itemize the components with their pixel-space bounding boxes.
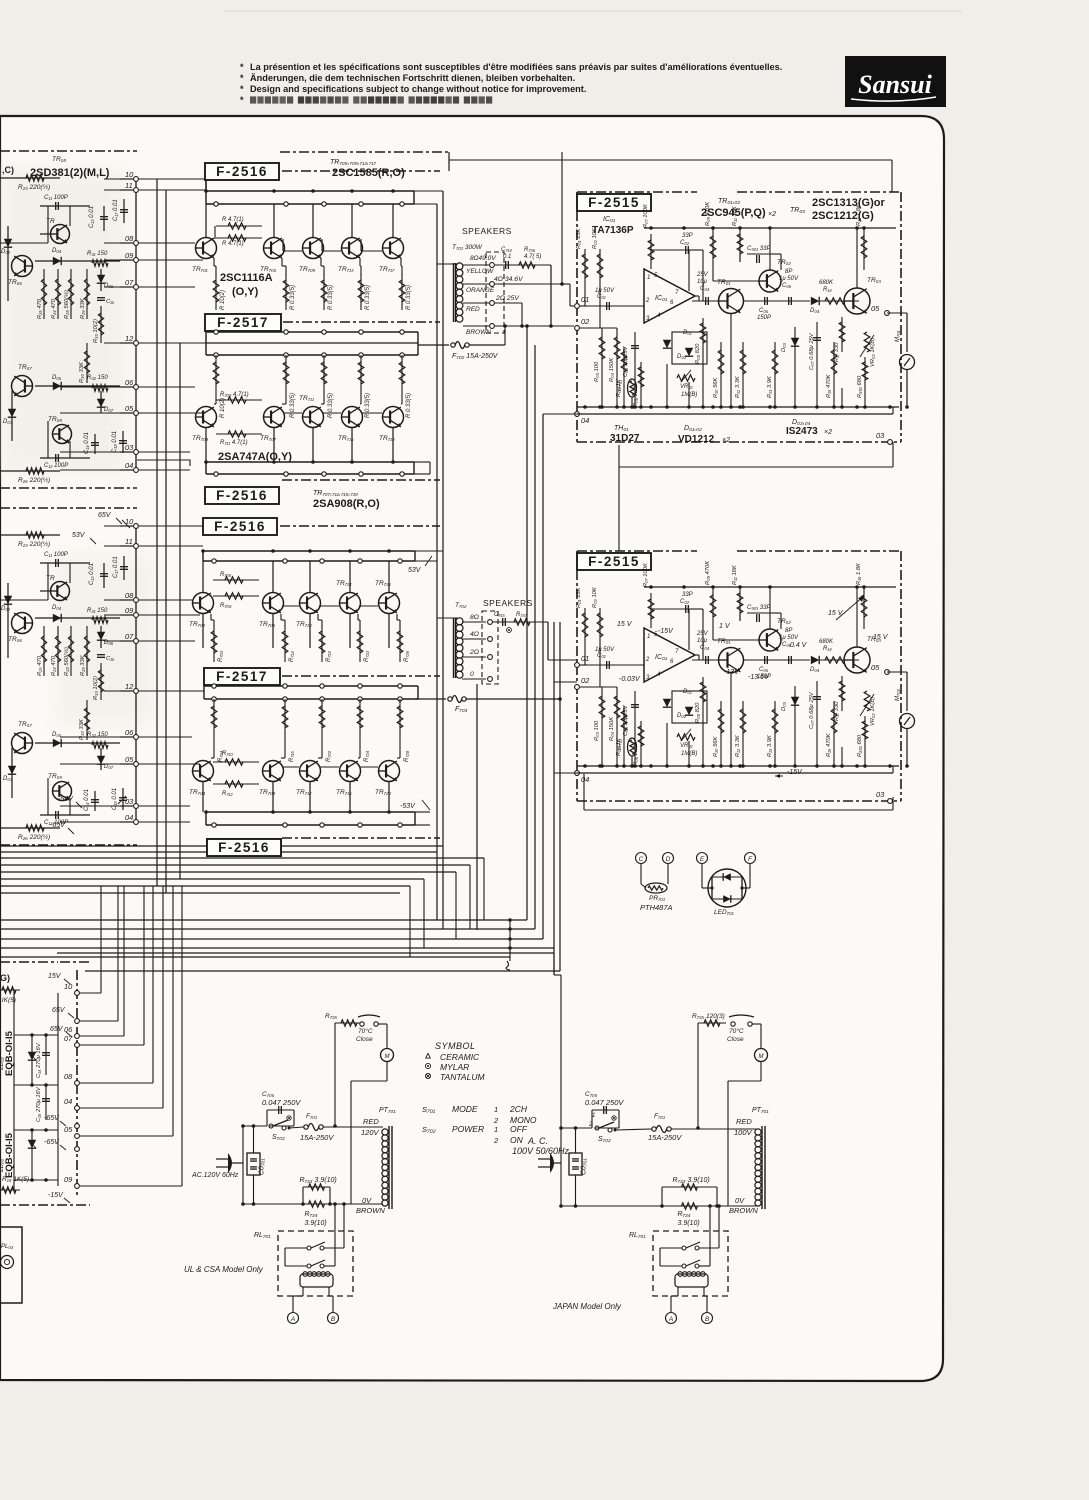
svg-text:R₂₉ 33K: R₂₉ 33K <box>80 654 86 676</box>
svg-text:TR₀₇: TR₀₇ <box>18 364 32 371</box>
svg-text:ZD₀₂: ZD₀₂ <box>0 1056 5 1071</box>
svg-text:R 0.33(5): R 0.33(5) <box>365 285 371 310</box>
svg-text:-13.6V: -13.6V <box>748 674 770 681</box>
svg-text:R 4.7(1): R 4.7(1) <box>222 217 244 223</box>
svg-text:31D27: 31D27 <box>610 433 640 444</box>
svg-text:VR₀₁: VR₀₁ <box>680 384 693 390</box>
svg-text:04: 04 <box>125 461 133 470</box>
svg-text:1 V: 1 V <box>719 623 731 630</box>
svg-text:R₇₂₄: R₇₂₄ <box>364 750 370 762</box>
svg-text:ORANGE: ORANGE <box>466 287 495 294</box>
svg-text:2: 2 <box>588 1122 593 1128</box>
svg-text:08: 08 <box>64 1072 73 1081</box>
svg-text:R₇₃₄: R₇₃₄ <box>678 1211 691 1218</box>
svg-text:C₁₇ 0.01: C₁₇ 0.01 <box>113 199 119 221</box>
svg-text:15V: 15V <box>48 973 62 980</box>
svg-text:15A-250V: 15A-250V <box>648 1133 682 1142</box>
svg-text:EQB-OI-I5: EQB-OI-I5 <box>4 1030 15 1076</box>
svg-text:09: 09 <box>125 606 134 615</box>
svg-text:D₀₄: D₀₄ <box>810 308 820 314</box>
svg-text:SYMBOL: SYMBOL <box>435 1041 476 1051</box>
svg-text:11: 11 <box>125 537 133 546</box>
svg-text:VR₀₁: VR₀₁ <box>680 743 693 749</box>
svg-text:R₀₈ 820: R₀₈ 820 <box>695 343 701 364</box>
svg-text:33P: 33P <box>682 592 693 598</box>
svg-text:S₇₀₂: S₇₀₂ <box>272 1134 285 1141</box>
svg-text:R₂₈ 560(½): R₂₈ 560(½) <box>63 647 70 676</box>
svg-text:R₇₁₂: R₇₁₂ <box>222 791 233 797</box>
svg-text:R₇₀₂: R₇₀₂ <box>218 650 224 662</box>
svg-text:0.4 V: 0.4 V <box>790 642 808 649</box>
svg-text:05: 05 <box>871 304 880 313</box>
svg-text:05: 05 <box>64 1125 73 1134</box>
svg-text:D₀₃,₀₄: D₀₃,₀₄ <box>792 419 811 426</box>
svg-text:R₃₀ 33K: R₃₀ 33K <box>79 361 85 383</box>
svg-text:D₀₆: D₀₆ <box>104 283 114 289</box>
svg-text:(O,Y): (O,Y) <box>232 286 259 298</box>
svg-text:*: * <box>240 84 244 94</box>
svg-text:R₇₃₅ 120(3): R₇₃₅ 120(3) <box>692 1013 725 1020</box>
svg-text:R₃₂ 150: R₃₂ 150 <box>87 375 108 381</box>
svg-text:TA7136P: TA7136P <box>592 225 634 236</box>
svg-text:M₇₀₁: M₇₀₁ <box>895 330 901 342</box>
svg-text:R₈₀₁ 680: R₈₀₁ 680 <box>857 734 863 757</box>
svg-text:POWER: POWER <box>452 1124 484 1134</box>
svg-text:T₇₀₁ 300W: T₇₀₁ 300W <box>452 244 483 251</box>
svg-text:2SA747A(O,Y): 2SA747A(O,Y) <box>218 451 292 463</box>
svg-text:Sansui: Sansui <box>858 70 932 99</box>
svg-text:M: M <box>385 1054 390 1060</box>
svg-text:C0₇₀₁: C0₇₀₁ <box>259 1158 266 1175</box>
svg-text:TR₀₇: TR₀₇ <box>18 721 32 728</box>
svg-text:07: 07 <box>64 1034 73 1043</box>
svg-text:VD1212: VD1212 <box>678 434 715 445</box>
svg-text:SPEAKERS: SPEAKERS <box>483 598 533 608</box>
svg-text:0V: 0V <box>735 1196 745 1205</box>
svg-text:70°C: 70°C <box>358 1027 373 1035</box>
svg-text:D₀₂: D₀₂ <box>677 713 687 719</box>
svg-text:C₁₄ 0.01: C₁₄ 0.01 <box>84 432 90 454</box>
svg-text:Close: Close <box>356 1036 373 1043</box>
svg-text:TR: TR <box>46 575 55 582</box>
svg-text:CERAMIC: CERAMIC <box>440 1052 480 1062</box>
svg-text:S₇₀₁: S₇₀₁ <box>422 1105 436 1114</box>
svg-text:04: 04 <box>64 1097 72 1106</box>
svg-text:TR₇₀₅,₇₀₉,₇₁₃,₇₁₇: TR₇₀₅,₇₀₉,₇₁₃,₇₁₇ <box>330 159 377 166</box>
svg-text:G): G) <box>0 973 10 983</box>
svg-text:C₁₈ 0.01: C₁₈ 0.01 <box>112 431 118 453</box>
svg-text:TH₀₁: TH₀₁ <box>617 380 623 392</box>
svg-text:C₀₇ 0.68μ 25V: C₀₇ 0.68μ 25V <box>809 332 815 370</box>
svg-text:D₀₄: D₀₄ <box>810 667 820 673</box>
svg-text:C₀₁: C₀₁ <box>597 653 606 659</box>
svg-text:1μ 50V: 1μ 50V <box>779 276 799 282</box>
svg-text:R₁₂ 3.3K: R₁₂ 3.3K <box>735 375 741 398</box>
svg-text:06: 06 <box>64 1025 73 1034</box>
svg-text:R₁₄: R₁₄ <box>823 287 832 293</box>
svg-text:R₇₀₈: R₇₀₈ <box>220 603 232 609</box>
svg-text:R₀₂ 10K: R₀₂ 10K <box>592 586 598 608</box>
svg-text:TR₇₀₉: TR₇₀₉ <box>299 266 316 273</box>
svg-text:R₁₃ 3.9K: R₁₃ 3.9K <box>767 734 773 757</box>
svg-text:R 0.33(5): R 0.33(5) <box>406 393 412 418</box>
svg-text:2CH: 2CH <box>509 1104 528 1114</box>
svg-text:2SC1212(G): 2SC1212(G) <box>812 210 874 222</box>
svg-text:TR₀₃: TR₀₃ <box>867 277 881 284</box>
svg-text:C0₇₀₁: C0₇₀₁ <box>581 1158 588 1175</box>
svg-text:R₂₃ 220(½): R₂₃ 220(½) <box>18 540 50 548</box>
svg-text:*: * <box>240 73 244 83</box>
svg-text:1: 1 <box>494 1105 498 1114</box>
svg-text:10μ: 10μ <box>697 279 708 285</box>
svg-text:-65V: -65V <box>50 822 66 829</box>
svg-text:150P: 150P <box>757 315 771 321</box>
svg-text:C₇₁₅: C₇₁₅ <box>494 612 505 618</box>
svg-text:C₁₅ 270μ 16V: C₁₅ 270μ 16V <box>36 1086 42 1122</box>
svg-text:R₀₄ 150K: R₀₄ 150K <box>609 357 615 382</box>
svg-text:C₀₄: C₀₄ <box>700 286 710 292</box>
svg-text:R 0.33(5): R 0.33(5) <box>328 285 334 310</box>
svg-text:F₇₀₂ 15A-250V: F₇₀₂ 15A-250V <box>452 353 499 360</box>
svg-text:R₇₃₄: R₇₃₄ <box>305 1211 318 1218</box>
svg-text:F-2517: F-2517 <box>216 669 268 684</box>
svg-text:11: 11 <box>125 181 133 190</box>
svg-text:R₁₅ 470K: R₁₅ 470K <box>826 373 832 398</box>
svg-text:15A-250V: 15A-250V <box>300 1133 334 1142</box>
svg-text:120V: 120V <box>361 1128 380 1137</box>
svg-text:3.9(10): 3.9(10) <box>678 1220 700 1227</box>
svg-text:C₇₁₄: C₇₁₄ <box>501 247 512 253</box>
svg-text:R₁₇ 330: R₁₇ 330 <box>834 701 840 721</box>
svg-text:,C): ,C) <box>2 165 14 175</box>
svg-text:1μ 50V: 1μ 50V <box>595 647 615 653</box>
svg-text:C₁₅: C₁₅ <box>106 656 115 662</box>
svg-text:R₂₄ 470: R₂₄ 470 <box>51 298 57 319</box>
svg-text:F₇₀₁: F₇₀₁ <box>654 1113 665 1120</box>
svg-text:D₀₃: D₀₃ <box>781 701 787 711</box>
svg-text:F₇₀₃: F₇₀₃ <box>455 706 468 713</box>
svg-text:C₉₀₁ 33P: C₉₀₁ 33P <box>747 605 770 611</box>
svg-text:BROWN: BROWN <box>729 1206 758 1215</box>
svg-text:R₃₁ 150: R₃₁ 150 <box>87 608 108 614</box>
svg-text:D₀₁: D₀₁ <box>683 689 692 695</box>
svg-text:MODE: MODE <box>452 1104 478 1114</box>
svg-text:02: 02 <box>581 676 590 685</box>
svg-text:Design and specifications subj: Design and specifications subject to cha… <box>250 84 586 94</box>
svg-text:C₁₃ 0.01: C₁₃ 0.01 <box>89 563 95 585</box>
svg-text:R₇₂₂: R₇₂₂ <box>364 650 370 662</box>
svg-text:R₁₇ 330: R₁₇ 330 <box>834 342 840 362</box>
svg-text:03: 03 <box>876 790 885 799</box>
svg-text:1μ 50V: 1μ 50V <box>779 635 799 641</box>
svg-text:12: 12 <box>125 334 134 343</box>
svg-text:F-2516: F-2516 <box>216 488 268 503</box>
svg-text:R 10(2): R 10(2) <box>220 290 226 310</box>
svg-text:53V: 53V <box>72 532 86 539</box>
svg-text:R₁₄: R₁₄ <box>823 646 832 652</box>
svg-text:2SA908(R,O): 2SA908(R,O) <box>313 498 380 510</box>
svg-text:TH₀₁: TH₀₁ <box>614 425 629 432</box>
svg-text:R₇₂₀: R₇₂₀ <box>326 750 332 762</box>
svg-text:R₂₆ 220(½): R₂₆ 220(½) <box>18 476 50 484</box>
svg-text:PL₀₃: PL₀₃ <box>1 1244 14 1250</box>
svg-text:S₇₀₂: S₇₀₂ <box>422 1125 436 1134</box>
svg-text:2Ω: 2Ω <box>469 649 479 656</box>
svg-text:MYLAR: MYLAR <box>440 1062 469 1072</box>
svg-text:10: 10 <box>125 170 134 179</box>
svg-text:05: 05 <box>871 663 880 672</box>
svg-text:100V: 100V <box>734 1128 753 1137</box>
svg-text:R₃₃ 10(2): R₃₃ 10(2) <box>93 676 99 700</box>
svg-text:TR₀₆: TR₀₆ <box>8 636 22 643</box>
svg-text:R₂₅ 470: R₂₅ 470 <box>37 298 43 319</box>
svg-text:TANTALUM: TANTALUM <box>440 1072 485 1082</box>
svg-text:15 V: 15 V <box>617 621 633 628</box>
svg-text:D₀₃: D₀₃ <box>3 776 13 782</box>
svg-text:R₇₃₃ 3.9(10): R₇₃₃ 3.9(10) <box>300 1177 337 1184</box>
svg-text:D₀₅: D₀₅ <box>52 375 62 381</box>
svg-text:07: 07 <box>125 632 134 641</box>
svg-text:D: D <box>666 856 671 863</box>
svg-text:R 4.7(1): R 4.7(1) <box>222 241 244 247</box>
svg-text:D₀₂: D₀₂ <box>677 354 687 360</box>
svg-text:IC₀₁: IC₀₁ <box>655 654 668 661</box>
svg-text:R₇₀₉ 4.7(1): R₇₀₉ 4.7(1) <box>220 392 249 398</box>
svg-text:RED: RED <box>466 306 480 313</box>
svg-text:SPEAKERS: SPEAKERS <box>462 226 512 236</box>
svg-text:08: 08 <box>125 234 134 243</box>
svg-text:R 10(2): R 10(2) <box>220 398 226 418</box>
svg-text:F-2516: F-2516 <box>214 519 266 534</box>
svg-text:TR₇₁₇: TR₇₁₇ <box>379 266 395 273</box>
svg-text:RED: RED <box>736 1117 752 1126</box>
svg-text:1: 1 <box>592 1113 595 1119</box>
svg-text:70°C: 70°C <box>729 1027 744 1035</box>
svg-text:R₀₃ 100: R₀₃ 100 <box>594 720 600 741</box>
svg-text:0.047 250V: 0.047 250V <box>262 1098 301 1107</box>
svg-text:R₇₂₈: R₇₂₈ <box>404 750 410 762</box>
svg-text:R₇₁₆: R₇₁₆ <box>289 751 295 762</box>
svg-text:TR: TR <box>46 218 55 225</box>
svg-text:M: M <box>759 1054 764 1060</box>
svg-text:04: 04 <box>581 416 589 425</box>
svg-text:BROWN: BROWN <box>356 1206 385 1215</box>
svg-text:R 0.33(5): R 0.33(5) <box>328 393 334 418</box>
svg-text:8P: 8P <box>785 628 792 634</box>
svg-text:LED₇₀₁: LED₇₀₁ <box>714 909 734 916</box>
svg-text:2SC1585(R,O): 2SC1585(R,O) <box>332 167 405 179</box>
svg-text:06: 06 <box>125 728 134 737</box>
svg-text:C₁₁ 100P: C₁₁ 100P <box>44 552 68 558</box>
svg-text:C₀₁: C₀₁ <box>597 294 606 300</box>
svg-text:1: 1 <box>647 634 650 640</box>
svg-text:C₁₄ 0.01: C₁₄ 0.01 <box>84 789 90 811</box>
svg-text:1: 1 <box>494 1125 498 1134</box>
svg-text:8P: 8P <box>785 269 792 275</box>
svg-text:RL₇₀₁: RL₇₀₁ <box>629 1232 646 1239</box>
svg-text:53V: 53V <box>408 567 422 574</box>
svg-text:UL & CSA Model Only: UL & CSA Model Only <box>184 1265 264 1274</box>
svg-text:TR₀₉: TR₀₉ <box>48 773 62 780</box>
svg-text:PT₇₀₁: PT₇₀₁ <box>752 1107 769 1114</box>
svg-text:C₇₀₅: C₇₀₅ <box>585 1091 598 1098</box>
svg-text:TR₇₀₇,₇₁₁,₇₁₅,₇₁₉: TR₇₀₇,₇₁₁,₇₁₅,₇₁₉ <box>313 490 358 497</box>
svg-text:C₀₇ 0.68μ 25V: C₀₇ 0.68μ 25V <box>809 691 815 729</box>
svg-text:VR₀₂ 1K(B): VR₀₂ 1K(B) <box>870 338 876 367</box>
svg-text:D₀₇: D₀₇ <box>104 764 114 770</box>
svg-text:PT₇₀₁: PT₇₀₁ <box>379 1107 396 1114</box>
svg-text:0V: 0V <box>362 1196 372 1205</box>
svg-text:R₁₃ 3.9K: R₁₃ 3.9K <box>767 375 773 398</box>
svg-text:R₀₃ 100: R₀₃ 100 <box>594 361 600 382</box>
svg-text:R₇₁₁ 4.7(1): R₇₁₁ 4.7(1) <box>220 440 248 446</box>
svg-text:R₇₃₅: R₇₃₅ <box>325 1013 338 1020</box>
svg-text:TR₀₉: TR₀₉ <box>48 416 62 423</box>
svg-text:TR₀₃: TR₀₃ <box>790 207 805 214</box>
svg-text:R₈₀₁ 680: R₈₀₁ 680 <box>857 375 863 398</box>
svg-text:4Ω: 4Ω <box>470 631 479 638</box>
svg-text:A: A <box>668 1316 673 1323</box>
svg-text:R₂₉ 33K: R₂₉ 33K <box>80 297 86 319</box>
svg-text:07: 07 <box>125 278 134 287</box>
svg-text:15 V: 15 V <box>873 634 889 641</box>
svg-text:ON: ON <box>510 1135 524 1145</box>
svg-text:R₃₃ 10(2): R₃₃ 10(2) <box>93 319 99 343</box>
svg-text:IC₀₁: IC₀₁ <box>655 295 668 302</box>
svg-text:680K: 680K <box>819 280 834 286</box>
svg-text:×2: ×2 <box>722 437 730 444</box>
svg-text:C₁₂ 100P: C₁₂ 100P <box>44 463 68 469</box>
svg-text:R₇₁₀: R₇₁₀ <box>222 751 233 757</box>
svg-text:R 0.33(5): R 0.33(5) <box>406 285 412 310</box>
svg-text:-53V: -53V <box>58 796 74 803</box>
svg-text:TR₇₁₁: TR₇₁₁ <box>299 395 314 402</box>
svg-text:*: * <box>240 62 244 72</box>
svg-text:C₁₄ 270μ 16V: C₁₄ 270μ 16V <box>36 1042 42 1078</box>
svg-text:2SC1313(G)or: 2SC1313(G)or <box>812 197 885 209</box>
svg-text:IS2473: IS2473 <box>786 426 818 437</box>
svg-text:TH₀₁: TH₀₁ <box>617 739 623 751</box>
svg-text:TR₀₂: TR₀₂ <box>777 618 791 625</box>
svg-text:M₇₀₂: M₇₀₂ <box>895 688 901 701</box>
svg-text:R₇₃₆: R₇₃₆ <box>524 247 536 253</box>
svg-text:8Ω: 8Ω <box>470 614 479 621</box>
svg-text:TR₀₆: TR₀₆ <box>8 279 22 286</box>
svg-text:R₂₃ 220(½): R₂₃ 220(½) <box>18 183 50 191</box>
svg-text:06: 06 <box>125 378 134 387</box>
svg-text:R₇₃₃ 3.9(10): R₇₃₃ 3.9(10) <box>673 1177 710 1184</box>
svg-text:TR₀₁: TR₀₁ <box>717 638 730 645</box>
svg-text:IC₀₁: IC₀₁ <box>603 216 616 223</box>
svg-text:D₀₄: D₀₄ <box>52 605 62 611</box>
svg-text:AC.120V 60Hz: AC.120V 60Hz <box>191 1172 239 1179</box>
svg-text:A. C.: A. C. <box>527 1136 548 1146</box>
svg-text:F-2515: F-2515 <box>588 195 640 210</box>
svg-text:R₇₂₆: R₇₂₆ <box>404 650 410 662</box>
svg-text:1μ 50V: 1μ 50V <box>595 288 615 294</box>
svg-text:4Ω 34.6V: 4Ω 34.6V <box>494 276 524 283</box>
svg-text:PTH487A: PTH487A <box>640 903 673 912</box>
svg-text:3.9(10): 3.9(10) <box>305 1220 327 1227</box>
svg-text:PR₇₀₁: PR₇₀₁ <box>649 895 665 902</box>
svg-text:F-2517: F-2517 <box>217 315 269 330</box>
svg-text:04: 04 <box>581 775 589 784</box>
svg-text:B: B <box>705 1316 710 1323</box>
svg-text:EQB-OI-I5: EQB-OI-I5 <box>4 1132 15 1178</box>
svg-text:C₁₃ 0.01: C₁₃ 0.01 <box>89 206 95 228</box>
svg-text:TR₀₈: TR₀₈ <box>52 156 66 163</box>
svg-text:-53V: -53V <box>400 803 416 810</box>
svg-text:C₀₄: C₀₄ <box>700 645 710 651</box>
svg-text:F-2515: F-2515 <box>588 554 640 569</box>
svg-text:C₀₂: C₀₂ <box>680 240 690 246</box>
svg-text:TR₀₁,₀₂: TR₀₁,₀₂ <box>718 198 740 205</box>
svg-text:R₂₈ 560(½): R₂₈ 560(½) <box>63 290 70 319</box>
svg-text:25V: 25V <box>696 631 709 637</box>
svg-text:C₉₀₁ 33P: C₉₀₁ 33P <box>747 246 770 252</box>
svg-text:R 0.33(5): R 0.33(5) <box>290 285 296 310</box>
svg-text:R₁₀ 56K: R₁₀ 56K <box>713 376 719 398</box>
svg-text:-15V: -15V <box>48 1192 64 1199</box>
svg-text:C₀₂: C₀₂ <box>680 599 690 605</box>
svg-text:OFF: OFF <box>510 1124 528 1134</box>
svg-text:R₇₃₇: R₇₃₇ <box>516 612 528 618</box>
svg-text:RL₇₀₁: RL₇₀₁ <box>254 1232 271 1239</box>
svg-text:R₂₅ 470: R₂₅ 470 <box>37 655 43 676</box>
svg-text:-15V: -15V <box>658 628 674 635</box>
svg-text:S₇₀₂: S₇₀₂ <box>598 1136 611 1143</box>
svg-text:R₀₁ 15K: R₀₁ 15K <box>576 586 582 608</box>
svg-text:TR₀₁: TR₀₁ <box>717 279 730 286</box>
svg-text:YELLOW: YELLOW <box>466 268 494 275</box>
svg-text:ZD₀₃: ZD₀₃ <box>0 1158 5 1173</box>
svg-text:TR₀₂: TR₀₂ <box>777 259 791 266</box>
svg-text:25V: 25V <box>696 272 709 278</box>
svg-text:T₇₀₂: T₇₀₂ <box>455 602 467 609</box>
svg-text:R₁₂ 3.3K: R₁₂ 3.3K <box>735 734 741 757</box>
svg-text:09: 09 <box>64 1175 73 1184</box>
svg-text:D₀₇: D₀₇ <box>104 407 114 413</box>
svg-text:F-2516: F-2516 <box>218 840 270 855</box>
svg-text:D₀₁,₀₂: D₀₁,₀₂ <box>684 425 702 432</box>
svg-text:C₀₆: C₀₆ <box>782 283 792 289</box>
svg-text:12: 12 <box>125 682 134 691</box>
svg-text:02: 02 <box>581 317 590 326</box>
svg-text:VR₀₂ 1K(B): VR₀₂ 1K(B) <box>870 697 876 726</box>
svg-text:RED: RED <box>363 1117 379 1126</box>
svg-text:D₀₁: D₀₁ <box>683 330 692 336</box>
svg-text:8Ω49.0V: 8Ω49.0V <box>470 255 496 262</box>
svg-text:C: C <box>639 856 644 863</box>
svg-text:Close: Close <box>727 1036 744 1043</box>
svg-text:33P: 33P <box>682 233 693 239</box>
svg-text:-15V: -15V <box>787 769 803 776</box>
svg-text:C₁₅: C₁₅ <box>106 299 115 305</box>
svg-text:04: 04 <box>125 813 133 822</box>
svg-text:2: 2 <box>645 298 650 304</box>
svg-text:C₁₈ 0.01: C₁₈ 0.01 <box>112 788 118 810</box>
svg-text:E: E <box>700 856 705 863</box>
svg-text:65V: 65V <box>50 1026 64 1033</box>
svg-text:D₀₄: D₀₄ <box>52 248 62 254</box>
svg-text:2Ω 25V: 2Ω 25V <box>495 295 520 302</box>
svg-text:×2: ×2 <box>824 429 832 436</box>
svg-text:680K: 680K <box>819 639 834 645</box>
svg-text:R₁₁ 18K: R₁₁ 18K <box>732 564 738 585</box>
svg-text:0: 0 <box>470 671 474 678</box>
svg-text:B: B <box>331 1316 336 1323</box>
svg-text:C₁₁ 100P: C₁₁ 100P <box>44 195 68 201</box>
